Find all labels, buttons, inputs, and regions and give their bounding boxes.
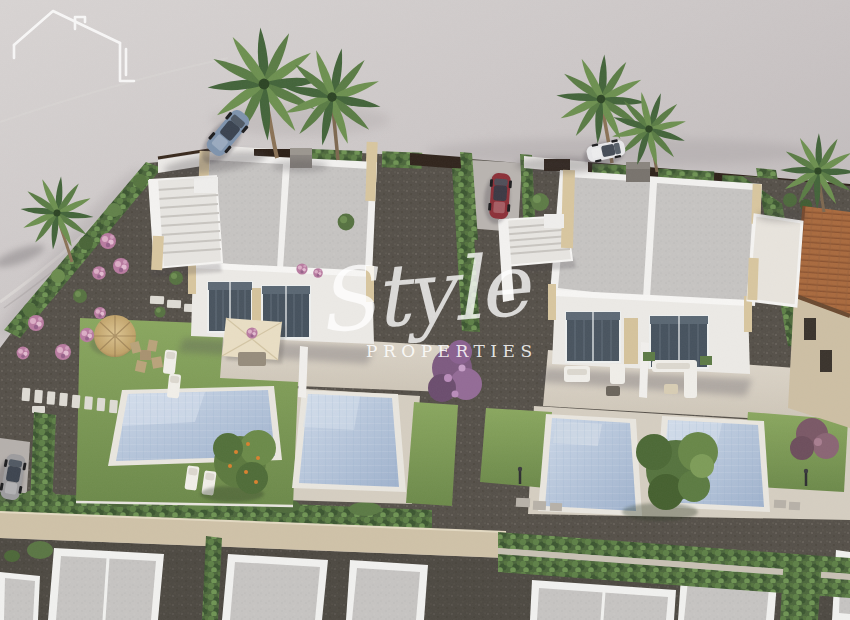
render-canvas: Style PROPERTIES bbox=[0, 0, 850, 620]
film-grain-overlay bbox=[0, 0, 850, 620]
aerial-render-svg bbox=[0, 0, 850, 620]
